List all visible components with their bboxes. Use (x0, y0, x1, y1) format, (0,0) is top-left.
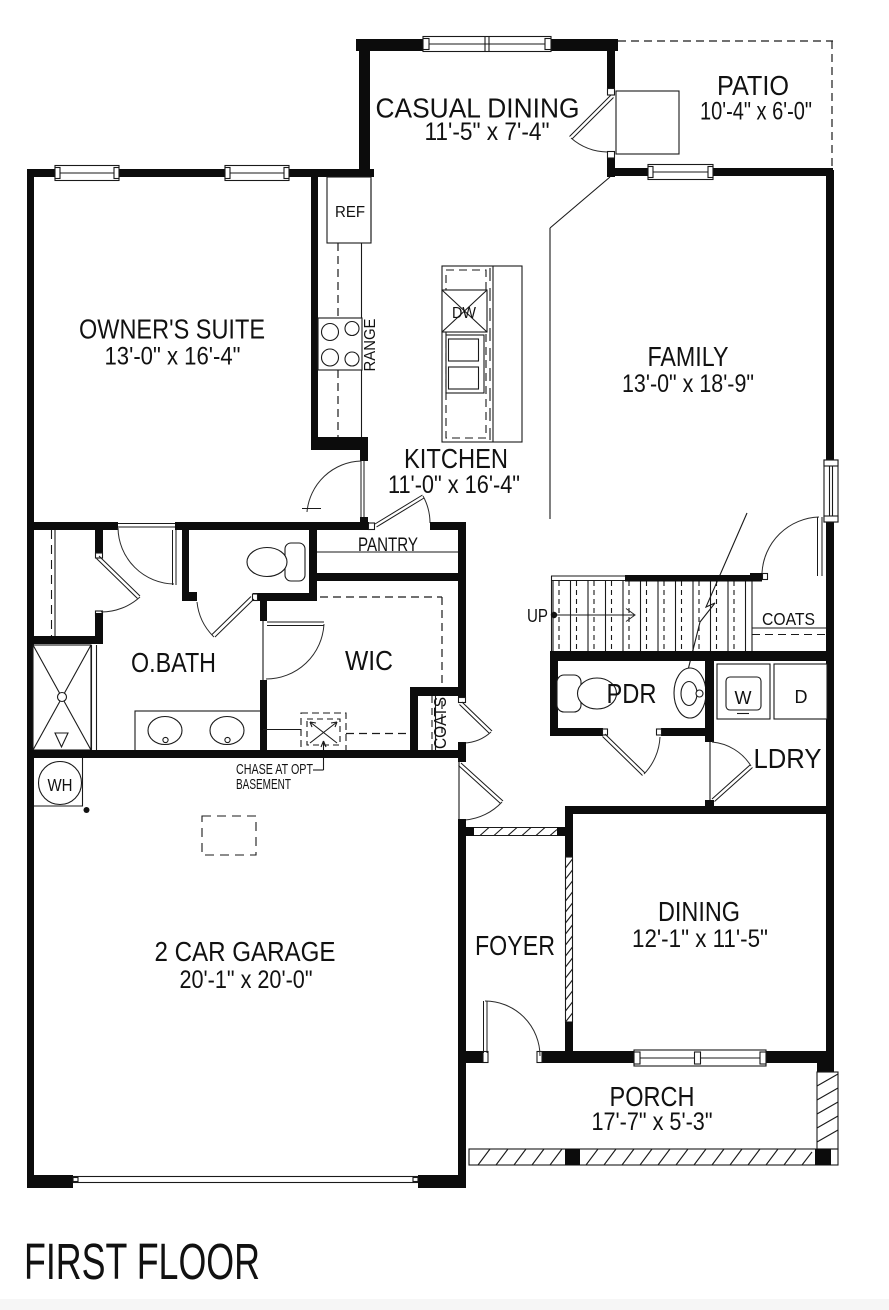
svg-text:RANGE: RANGE (362, 319, 379, 372)
svg-text:11'-5" x 7'-4": 11'-5" x 7'-4" (425, 118, 550, 146)
svg-text:FOYER: FOYER (475, 930, 555, 961)
svg-text:DW: DW (452, 305, 477, 322)
svg-text:COATS: COATS (430, 697, 450, 749)
svg-text:O.BATH: O.BATH (131, 647, 216, 678)
svg-text:PANTRY: PANTRY (358, 535, 418, 556)
svg-text:FIRST FLOOR: FIRST FLOOR (24, 1233, 260, 1290)
svg-text:FAMILY: FAMILY (648, 341, 729, 372)
svg-text:COATS: COATS (762, 609, 815, 629)
svg-text:20'-1" x 20'-0": 20'-1" x 20'-0" (180, 966, 313, 994)
svg-text:DINING: DINING (658, 896, 740, 927)
svg-text:13'-0" x 16'-4": 13'-0" x 16'-4" (105, 343, 241, 371)
svg-text:WH: WH (48, 775, 73, 795)
svg-text:D: D (795, 687, 808, 707)
svg-text:12'-1" x 11'-5": 12'-1" x 11'-5" (632, 925, 768, 953)
svg-text:PDR: PDR (607, 678, 657, 709)
svg-text:W: W (735, 688, 752, 708)
svg-text:BASEMENT: BASEMENT (236, 776, 291, 793)
svg-text:17'-7" x 5'-3": 17'-7" x 5'-3" (592, 1108, 713, 1136)
svg-text:10'-4" x 6'-0": 10'-4" x 6'-0" (700, 98, 812, 126)
svg-text:2 CAR GARAGE: 2 CAR GARAGE (155, 936, 336, 967)
svg-text:UP: UP (527, 606, 548, 626)
svg-text:OWNER'S SUITE: OWNER'S SUITE (79, 314, 265, 345)
svg-text:11'-0" x 16'-4": 11'-0" x 16'-4" (388, 471, 520, 499)
svg-text:KITCHEN: KITCHEN (404, 443, 508, 474)
svg-text:PATIO: PATIO (717, 70, 789, 101)
svg-text:WIC: WIC (345, 645, 393, 676)
svg-text:REF: REF (335, 204, 365, 221)
svg-text:LDRY: LDRY (754, 743, 822, 774)
svg-text:13'-0" x 18'-9": 13'-0" x 18'-9" (622, 370, 754, 398)
